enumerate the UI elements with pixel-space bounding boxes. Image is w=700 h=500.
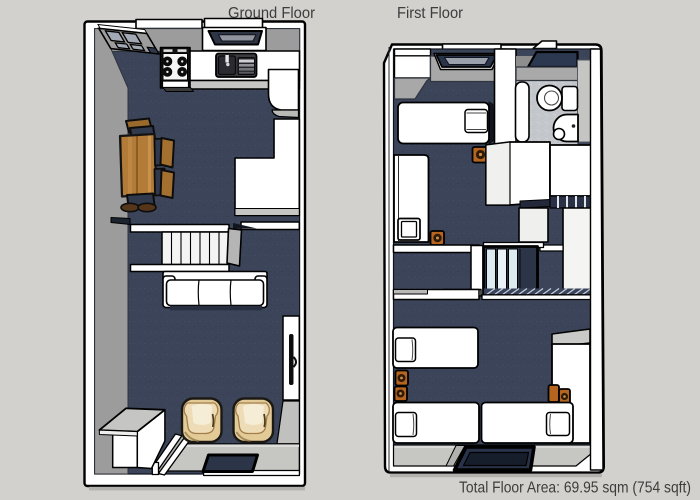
svg-text:First Floor: First Floor [397,5,463,22]
svg-text:Total Floor Area: 69.95 sqm (7: Total Floor Area: 69.95 sqm (754 sqft) [459,480,691,497]
